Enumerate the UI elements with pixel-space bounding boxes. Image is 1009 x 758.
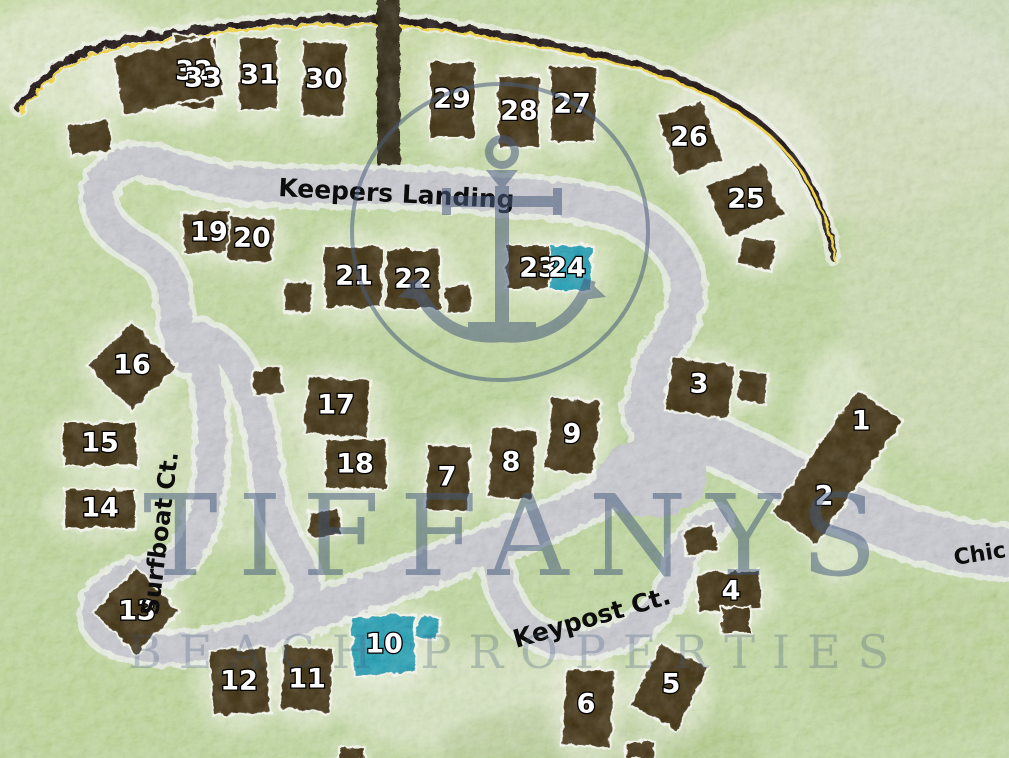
lot-number-24: 24 (548, 253, 586, 284)
lot-number-25: 25 (727, 184, 765, 215)
lot-number-1: 1 (852, 406, 871, 437)
lot-number-14: 14 (81, 493, 119, 524)
lot-number-20: 20 (233, 223, 271, 254)
lot-number-17: 17 (317, 390, 355, 421)
lot-number-3: 3 (690, 369, 709, 400)
lot-number-26: 26 (670, 122, 708, 153)
lot-number-16: 16 (113, 350, 151, 381)
watermark-name: TIFFANYS (143, 472, 897, 602)
lot-number-15: 15 (81, 428, 119, 459)
lot-number-19: 19 (190, 217, 228, 248)
map-svg: 1234567891011121314151617181920212223242… (0, 0, 1009, 758)
site-map: 1234567891011121314151617181920212223242… (0, 0, 1009, 758)
lot-number-33: 33 (184, 63, 222, 94)
lot-number-30: 30 (305, 64, 343, 95)
lot-number-6: 6 (577, 689, 596, 720)
lot-number-28: 28 (500, 96, 538, 127)
watermark-tagline: BEACH PROPERTIES (128, 625, 906, 679)
lot-number-31: 31 (240, 60, 278, 91)
lot-number-9: 9 (563, 419, 582, 450)
